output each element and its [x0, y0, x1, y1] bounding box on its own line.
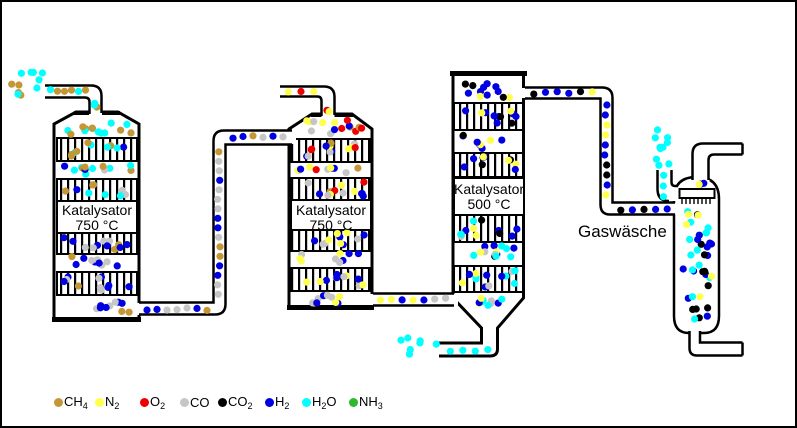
legend-item-h2: H2 — [265, 395, 289, 409]
co-legend-dot — [180, 398, 189, 407]
molecule-dot-n2 — [685, 211, 692, 218]
legend-item-o2: O2 — [140, 395, 165, 409]
molecule-dot-h2 — [214, 215, 221, 222]
molecule-dot-co2 — [704, 304, 711, 311]
molecule-dot-h2 — [216, 177, 223, 184]
legend-item-n2: N2 — [95, 395, 119, 409]
molecule-dot-n2 — [377, 296, 384, 303]
molecule-dot-co — [336, 259, 343, 266]
molecule-dot-h2 — [604, 181, 611, 188]
legend-item-co: CO — [180, 395, 210, 409]
legend-formula-nh3: NH3 — [359, 394, 383, 411]
molecule-dot-n2 — [696, 181, 703, 188]
molecule-dot-h2 — [114, 262, 121, 269]
molecule-dot-h2 — [216, 262, 223, 269]
molecule-dot-h2o — [91, 100, 98, 107]
molecule-dot-ch4 — [249, 132, 256, 139]
molecule-dot-co2 — [530, 91, 537, 98]
molecule-dot-n2 — [310, 88, 317, 95]
molecule-dot-ch4 — [68, 151, 75, 158]
molecule-dot-h2 — [73, 261, 80, 268]
molecule-dot-co — [90, 244, 97, 251]
o2-legend-dot — [140, 398, 149, 407]
molecule-dot-co — [183, 304, 190, 311]
molecule-dot-n2 — [306, 164, 313, 171]
molecule-dot-h2 — [510, 245, 517, 252]
molecule-dot-h2o — [705, 224, 712, 231]
molecule-dot-co2 — [478, 217, 485, 224]
molecule-dot-h2o — [98, 130, 105, 137]
molecule-dot-h2 — [602, 141, 609, 148]
molecule-dot-n2 — [696, 293, 703, 300]
molecule-dot-h2o — [498, 242, 505, 249]
molecule-dot-h2o — [104, 144, 111, 151]
molecule-dot-ch4 — [215, 148, 222, 155]
molecule-dot-n2 — [336, 250, 343, 257]
molecule-dot-co — [215, 234, 222, 241]
legend-item-ch4: CH4 — [54, 395, 88, 409]
molecule-dot-h2o — [71, 167, 78, 174]
molecule-dot-h2o — [89, 165, 96, 172]
molecule-dot-h2o — [694, 247, 701, 254]
molecule-dot-n2 — [708, 273, 715, 280]
molecule-dot-h2 — [358, 190, 365, 197]
legend-formula-h2o: H2O — [312, 394, 337, 411]
molecule-dot-co — [98, 287, 105, 294]
molecule-dot-h2 — [704, 313, 711, 320]
molecule-dot-h2o — [407, 346, 414, 353]
molecule-dot-co2 — [497, 113, 504, 120]
legend-formula-h2: H2 — [275, 394, 289, 411]
molecule-dot-h2 — [491, 112, 498, 119]
process-flow-diagram: Katalysator 750 °C Katalysator 750 °C Ka… — [0, 0, 797, 428]
molecule-dot-co — [340, 273, 347, 280]
molecule-dot-h2 — [512, 166, 519, 173]
molecule-dot-co2 — [500, 94, 507, 101]
molecule-dot-ch4 — [89, 125, 96, 132]
molecule-dot-n2 — [285, 88, 292, 95]
molecule-dot-n2 — [480, 153, 487, 160]
molecule-dot-co — [215, 158, 222, 165]
molecule-dot-h2 — [498, 273, 505, 280]
molecule-dot-h2 — [229, 135, 236, 142]
molecule-dot-co — [485, 282, 492, 289]
legend-formula-co2: CO2 — [228, 394, 253, 411]
molecule-dot-n2 — [477, 249, 484, 256]
molecule-dot-h2 — [484, 92, 491, 99]
molecule-dot-h2 — [143, 306, 150, 313]
molecule-dot-ch4 — [354, 165, 361, 172]
molecule-dot-h2o — [127, 162, 134, 169]
molecule-dot-h2 — [652, 206, 659, 213]
molecule-dot-n2 — [337, 240, 344, 247]
legend-item-co2: CO2 — [218, 395, 253, 409]
molecule-dot-co2 — [496, 230, 503, 237]
molecule-dot-h2o — [39, 69, 46, 76]
molecule-dot-h2o — [511, 280, 518, 287]
molecule-dot-h2 — [331, 126, 338, 133]
molecule-dot-h2 — [96, 260, 103, 267]
molecule-dot-h2o — [108, 120, 115, 127]
molecule-dot-h2o — [659, 144, 666, 151]
molecule-dot-h2o — [507, 253, 514, 260]
molecule-dot-h2 — [664, 205, 671, 212]
molecule-dot-h2o — [397, 337, 404, 344]
reactor3-label-line2: 500 °C — [454, 197, 524, 212]
molecule-dot-h2o — [47, 86, 54, 93]
molecule-dot-h2 — [126, 283, 133, 290]
molecule-dot-co — [173, 306, 180, 313]
molecule-dot-h2o — [458, 231, 465, 238]
molecule-dot-h2o — [433, 341, 440, 348]
molecule-dot-h2o — [689, 266, 696, 273]
molecule-dot-h2o — [472, 348, 479, 355]
molecule-dot-h2 — [474, 139, 481, 146]
molecule-dot-n2 — [683, 221, 690, 228]
molecule-dot-h2o — [28, 69, 35, 76]
gaswaesche-label: Gaswäsche — [578, 222, 667, 242]
molecule-dot-co2 — [460, 132, 467, 139]
molecule-dot-n2 — [325, 236, 332, 243]
molecule-dot-h2o — [123, 121, 130, 128]
molecule-dot-h2 — [565, 90, 572, 97]
h2o-legend-dot — [302, 398, 311, 407]
molecule-dot-co2 — [577, 88, 584, 95]
molecule-dot-h2o — [18, 70, 25, 77]
molecule-dot-o2 — [308, 146, 315, 153]
molecule-dot-co — [343, 169, 350, 176]
molecule-dot-ch4 — [68, 87, 75, 94]
legend-item-h2o: H2O — [302, 395, 337, 409]
molecule-dot-ch4 — [82, 87, 89, 94]
molecule-dot-h2o — [686, 236, 693, 243]
molecule-dot-n2 — [331, 119, 338, 126]
molecule-dot-h2o — [470, 218, 477, 225]
legend-formula-ch4: CH4 — [64, 394, 88, 411]
molecule-dot-h2o — [33, 84, 40, 91]
molecule-dot-h2 — [680, 265, 687, 272]
molecule-dot-co — [82, 244, 89, 251]
molecule-dot-h2 — [495, 88, 502, 95]
molecule-dot-h2o — [75, 88, 82, 95]
molecule-dot-n2 — [409, 297, 416, 304]
molecule-dot-h2o — [14, 91, 21, 98]
molecule-dot-h2 — [694, 236, 701, 243]
molecule-dot-ch4 — [75, 282, 82, 289]
molecule-dot-n2 — [388, 296, 395, 303]
molecule-dot-h2o — [102, 191, 109, 198]
molecule-dot-co — [214, 281, 221, 288]
molecule-dot-h2 — [494, 119, 501, 126]
molecule-dot-h2o — [652, 134, 659, 141]
molecule-dot-h2o — [660, 172, 667, 179]
molecule-dot-co — [354, 235, 361, 242]
molecule-dot-ch4 — [100, 163, 107, 170]
molecule-dot-co — [216, 167, 223, 174]
legend-formula-o2: O2 — [150, 394, 165, 411]
molecule-dot-h2 — [80, 255, 87, 262]
molecule-dot-h2 — [603, 101, 610, 108]
molecule-dot-n2 — [338, 182, 345, 189]
molecule-dot-n2 — [589, 88, 596, 95]
molecule-dot-h2o — [447, 348, 454, 355]
molecule-dot-co — [305, 153, 312, 160]
molecule-dot-h2o — [470, 252, 477, 259]
molecule-dot-ch4 — [79, 123, 86, 130]
molecule-dot-n2 — [298, 257, 305, 264]
molecule-dot-h2 — [104, 242, 111, 249]
molecule-dot-ch4 — [90, 181, 97, 188]
legend-formula-n2: N2 — [105, 394, 119, 411]
molecule-dot-o2 — [358, 125, 365, 132]
molecule-dot-h2 — [466, 271, 473, 278]
molecule-dot-h2 — [470, 155, 477, 162]
molecule-dot-h2o — [492, 253, 499, 260]
molecule-dot-co — [305, 179, 312, 186]
molecule-dot-co — [324, 192, 331, 199]
molecule-dot-h2 — [120, 144, 127, 151]
molecule-dot-n2 — [695, 212, 702, 219]
molecule-dot-co — [442, 295, 449, 302]
co2-legend-dot — [218, 398, 227, 407]
pipes — [45, 86, 744, 357]
molecule-dot-ch4 — [127, 129, 134, 136]
molecule-dot-co2 — [701, 251, 708, 258]
molecule-dot-n2 — [472, 270, 479, 277]
molecule-dot-o2 — [360, 179, 367, 186]
molecule-dot-co — [214, 205, 221, 212]
reactor1-label-line1: Katalysator — [57, 203, 137, 218]
molecule-dot-h2o — [498, 296, 505, 303]
molecule-dot-h2 — [346, 250, 353, 257]
molecule-dot-h2 — [513, 226, 520, 233]
molecule-dot-h2 — [333, 271, 340, 278]
reactor2-label-line2: 750 °C — [291, 218, 371, 233]
molecule-dot-ch4 — [216, 253, 223, 260]
molecule-dot-h2o — [484, 346, 491, 353]
molecule-dot-o2 — [313, 166, 320, 173]
molecule-dot-h2 — [124, 241, 131, 248]
molecule-dot-h2 — [69, 238, 76, 245]
reactor1-label: Katalysator 750 °C — [57, 203, 137, 233]
molecule-dot-ch4 — [126, 309, 133, 316]
molecule-dot-n2 — [603, 121, 610, 128]
molecule-dot-h2 — [602, 111, 609, 118]
molecule-dot-n2 — [303, 279, 310, 286]
molecule-dot-h2 — [355, 276, 362, 283]
molecule-dot-ch4 — [8, 81, 15, 88]
molecule-dot-h2o — [459, 347, 466, 354]
molecule-dot-h2o — [696, 262, 703, 269]
molecule-dot-h2 — [542, 89, 549, 96]
molecule-dot-co2 — [479, 161, 486, 168]
molecule-dot-ch4 — [62, 188, 69, 195]
molecule-dot-h2o — [117, 192, 124, 199]
molecule-dot-h2 — [73, 186, 80, 193]
molecule-dot-ch4 — [68, 253, 75, 260]
molecule-dot-co — [259, 134, 266, 141]
molecule-dot-h2o — [655, 162, 662, 169]
molecule-dot-h2o — [114, 144, 121, 151]
molecule-dot-h2o — [654, 126, 661, 133]
molecule-dot-n2 — [351, 188, 358, 195]
molecule-dot-h2 — [119, 300, 126, 307]
molecule-dot-h2 — [491, 242, 498, 249]
molecule-dot-co2 — [701, 268, 708, 275]
pipe-r3-to-washer-bottom-wall — [525, 99, 675, 215]
molecule-dot-n2 — [319, 119, 326, 126]
molecule-dot-h2o — [85, 190, 92, 197]
molecule-dot-co — [112, 299, 119, 306]
molecule-dot-h2o — [660, 182, 667, 189]
molecule-dot-h2 — [554, 88, 561, 95]
molecule-dot-n2 — [332, 299, 339, 306]
molecule-dot-h2 — [239, 133, 246, 140]
molecule-dot-n2 — [326, 108, 333, 115]
molecule-dot-h2 — [480, 84, 487, 91]
molecule-dot-h2 — [60, 234, 67, 241]
reactor1-label-line2: 750 °C — [57, 218, 137, 233]
molecule-dot-n2 — [327, 164, 334, 171]
molecule-dot-h2o — [417, 337, 424, 344]
molecule-dot-co — [216, 186, 223, 193]
molecule-dot-h2 — [105, 282, 112, 289]
molecule-dot-h2o — [660, 193, 667, 200]
molecule-dot-h2 — [483, 272, 490, 279]
reactor2-label: Katalysator 750 °C — [291, 203, 371, 233]
molecule-dot-o2 — [352, 144, 359, 151]
molecule-dot-co — [214, 196, 221, 203]
molecule-dot-h2 — [193, 305, 200, 312]
molecule-dot-h2o — [665, 160, 672, 167]
molecule-dot-co2 — [603, 171, 610, 178]
molecule-dot-h2 — [297, 166, 304, 173]
molecule-dot-co — [163, 307, 170, 314]
molecule-dot-h2 — [61, 163, 68, 170]
molecule-dot-ch4 — [117, 127, 124, 134]
reactor3-label: Katalysator 500 °C — [454, 182, 524, 212]
molecule-dot-h2 — [103, 304, 110, 311]
molecule-dot-n2 — [487, 137, 494, 144]
molecule-dot-h2 — [323, 143, 330, 150]
molecule-dot-n2 — [359, 281, 366, 288]
molecule-dot-o2 — [297, 88, 304, 95]
molecule-dot-h2o — [691, 315, 698, 322]
washer-outlet-pipe-right-wall — [709, 155, 743, 181]
molecule-dot-co — [339, 190, 346, 197]
molecule-dot-h2 — [355, 250, 362, 257]
molecule-dot-h2o — [687, 251, 694, 258]
molecule-dot-n2 — [459, 279, 466, 286]
nh3-legend-dot — [349, 398, 358, 407]
molecule-dot-h2 — [461, 163, 468, 170]
legend-item-nh3: NH3 — [349, 395, 383, 409]
molecule-dot-h2 — [153, 306, 160, 313]
molecule-dot-ch4 — [203, 307, 210, 314]
legend-formula-co: CO — [190, 395, 210, 410]
molecule-dot-co2 — [469, 82, 476, 89]
molecule-dot-co2 — [603, 161, 610, 168]
molecule-dot-co — [104, 258, 111, 265]
molecule-dot-n2 — [317, 278, 324, 285]
molecule-dot-h2 — [708, 240, 715, 247]
molecule-dot-co — [431, 296, 438, 303]
molecule-dot-h2 — [311, 237, 318, 244]
molecule-dot-ch4 — [216, 243, 223, 250]
molecule-dot-h2 — [269, 133, 276, 140]
molecule-dot-n2 — [473, 232, 480, 239]
molecule-dot-h2o — [689, 293, 696, 300]
molecule-dot-h2 — [117, 244, 124, 251]
pipe-walls — [45, 86, 743, 356]
molecule-dot-n2 — [602, 131, 609, 138]
molecule-dot-h2o — [484, 302, 491, 309]
molecule-dot-h2 — [323, 277, 330, 284]
molecule-dot-h2 — [509, 233, 516, 240]
molecule-dot-h2 — [601, 151, 608, 158]
molecule-dot-co — [324, 292, 331, 299]
molecule-dot-h2 — [462, 107, 469, 114]
molecule-dot-h2 — [214, 272, 221, 279]
molecule-dot-co — [308, 127, 315, 134]
molecule-dot-h2 — [498, 137, 505, 144]
h2-legend-dot — [265, 398, 274, 407]
molecule-dot-co2 — [705, 282, 712, 289]
molecule-dot-n2 — [507, 108, 514, 115]
molecule-dot-n2 — [345, 145, 352, 152]
molecule-dot-h2 — [214, 224, 221, 231]
molecule-dot-h2o — [664, 134, 671, 141]
molecule-dot-h2o — [404, 334, 411, 341]
n2-legend-dot — [95, 398, 104, 407]
molecule-dot-co2 — [640, 206, 647, 213]
molecule-dot-ch4 — [15, 81, 22, 88]
molecule-dot-co2 — [617, 207, 624, 214]
molecule-dot-n2 — [477, 93, 484, 100]
molecule-dot-h2 — [399, 296, 406, 303]
molecule-dot-ch4 — [118, 308, 125, 315]
molecule-dot-ch4 — [81, 164, 88, 171]
molecule-dot-o2 — [344, 117, 351, 124]
molecule-dot-ch4 — [67, 131, 74, 138]
molecule-dot-co2 — [693, 305, 700, 312]
molecule-dot-h2 — [420, 296, 427, 303]
molecule-dot-h2 — [316, 190, 323, 197]
molecule-dot-h2 — [465, 90, 472, 97]
reactor3-label-line1: Katalysator — [454, 182, 524, 197]
molecule-dot-n2 — [478, 295, 485, 302]
ch4-legend-dot — [54, 398, 63, 407]
molecule-dot-ch4 — [61, 88, 68, 95]
molecule-dot-h2o — [511, 267, 518, 274]
molecule-dot-n2 — [505, 157, 512, 164]
molecule-dot-n2 — [478, 109, 485, 116]
molecule-dot-co — [215, 291, 222, 298]
molecule-dot-h2 — [313, 299, 320, 306]
molecule-dot-co — [95, 275, 102, 282]
molecule-dot-ch4 — [84, 139, 91, 146]
molecule-dot-co — [310, 118, 317, 125]
molecule-dot-co2 — [462, 81, 469, 88]
molecule-dot-co — [279, 133, 286, 140]
molecule-dot-h2 — [61, 278, 68, 285]
molecule-dot-n2 — [470, 225, 477, 232]
molecule-dot-h2 — [629, 206, 636, 213]
molecule-dot-o2 — [338, 125, 345, 132]
molecule-dot-ch4 — [54, 88, 61, 95]
molecule-dot-n2 — [602, 191, 609, 198]
reactor2-label-line1: Katalysator — [291, 203, 371, 218]
